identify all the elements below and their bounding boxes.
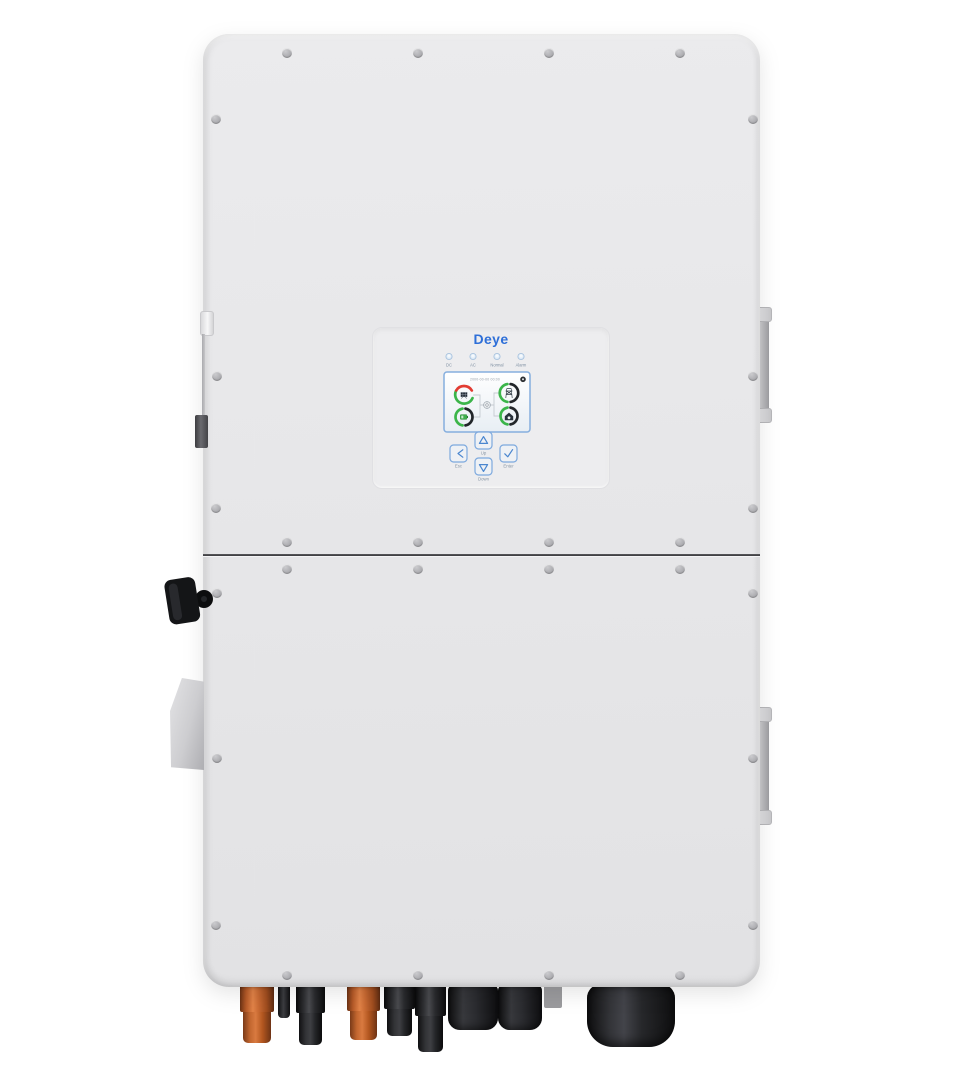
lcd-screen: 2000-00-00 00:00	[444, 372, 530, 432]
screw	[212, 753, 222, 763]
screw	[413, 970, 423, 980]
screw	[544, 537, 554, 547]
led-dc-indicator	[446, 353, 452, 359]
settings-gear-icon	[520, 377, 526, 383]
button-down[interactable]: Down	[475, 458, 492, 482]
screw	[748, 371, 758, 381]
side-bracket	[170, 678, 204, 770]
screw	[282, 48, 292, 58]
led-label-normal: Normal	[490, 363, 503, 368]
screw	[748, 503, 758, 513]
led-label-alarm: Alarm	[516, 363, 527, 368]
mc4-locking-pin	[278, 986, 290, 1018]
pv-connector-positive-2	[347, 984, 380, 1040]
enclosure-seam	[203, 554, 760, 557]
led-alarm-indicator	[518, 353, 524, 359]
deye-logo: Deye	[473, 331, 508, 347]
screw	[544, 48, 554, 58]
screw	[413, 537, 423, 547]
led-label-ac: AC	[470, 363, 476, 368]
screw	[748, 920, 758, 930]
button-up[interactable]: Up	[475, 432, 492, 456]
ac-cable-gland	[587, 984, 675, 1047]
screw	[413, 564, 423, 574]
screw	[675, 564, 685, 574]
pv-connector-positive-1	[240, 984, 274, 1043]
screw	[282, 970, 292, 980]
battery-icon	[460, 415, 468, 420]
dc-switch-knob	[163, 576, 201, 625]
button-label: Up	[481, 451, 487, 456]
screw	[282, 564, 292, 574]
cable-gland-1	[448, 984, 498, 1030]
dc-switch[interactable]	[156, 572, 214, 634]
pv-connector-negative-2	[384, 984, 415, 1036]
mounting-stub	[544, 984, 562, 1008]
lcd-datetime: 2000-00-00 00:00	[470, 378, 500, 382]
screw	[211, 503, 221, 513]
screw	[212, 371, 222, 381]
antenna-rod	[202, 334, 205, 415]
screw	[544, 970, 554, 980]
inverter-enclosure	[203, 34, 760, 987]
screw	[748, 753, 758, 763]
screw	[675, 537, 685, 547]
button-label: Down	[478, 477, 490, 482]
screw	[211, 114, 221, 124]
center-node-icon	[483, 401, 490, 408]
led-ac-indicator	[470, 353, 476, 359]
led-label-dc: DC	[446, 363, 452, 368]
control-panel: Deye DC AC Normal Alarm 2000-00-00 00:00	[372, 327, 610, 489]
screw	[748, 588, 758, 598]
button-esc[interactable]: Esc	[450, 445, 467, 469]
side-connector-block	[195, 415, 208, 448]
antenna-cap	[200, 311, 214, 336]
screw	[675, 970, 685, 980]
screw	[675, 48, 685, 58]
screw	[413, 48, 423, 58]
battery-connector	[415, 982, 446, 1052]
led-normal-indicator	[494, 353, 500, 359]
button-enter[interactable]: Enter	[500, 445, 517, 469]
cable-gland-2	[498, 984, 542, 1030]
pv-connector-negative-1	[296, 984, 325, 1045]
screw	[282, 537, 292, 547]
button-label: Enter	[503, 464, 514, 469]
led-row: DC AC Normal Alarm	[446, 353, 527, 367]
screw	[748, 114, 758, 124]
screw	[211, 920, 221, 930]
screw	[544, 564, 554, 574]
button-label: Esc	[455, 464, 463, 469]
deye-inverter-front-view: Deye DC AC Normal Alarm 2000-00-00 00:00	[0, 0, 970, 1080]
